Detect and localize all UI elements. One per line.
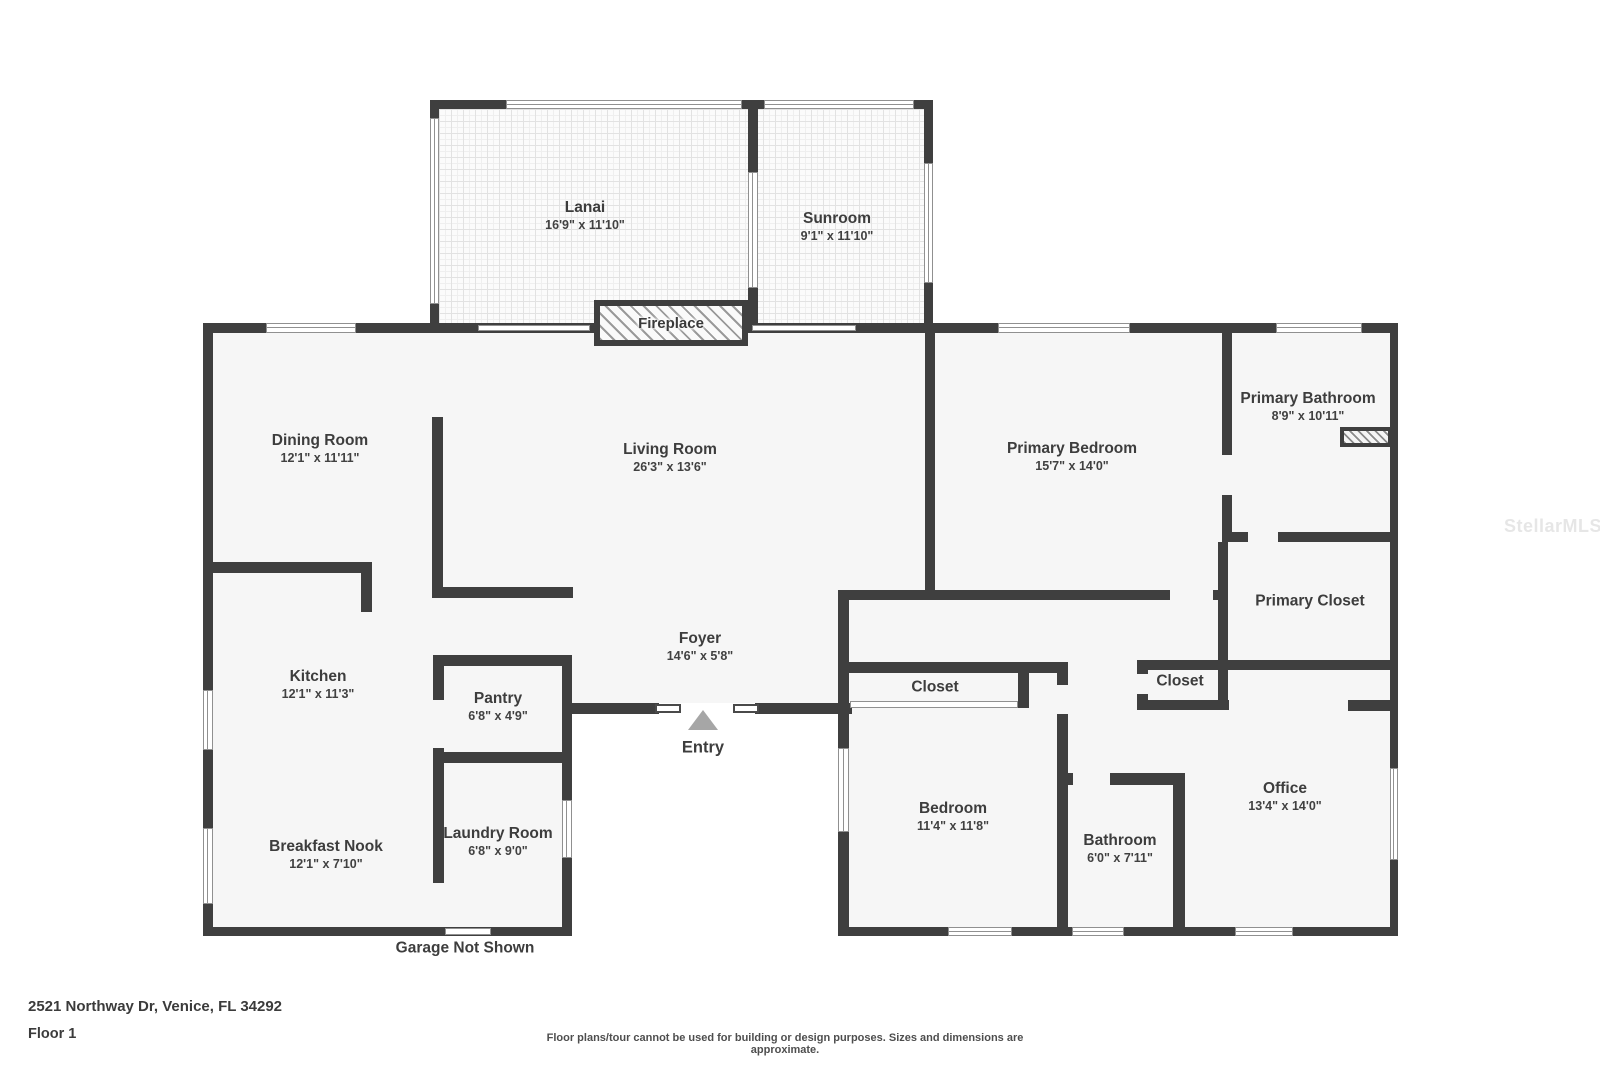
wall: [1018, 662, 1029, 708]
wall: [433, 752, 572, 763]
room-label-living-room: Living Room 26'3" x 13'6": [623, 440, 717, 476]
wall: [432, 587, 573, 598]
address: 2521 Northway Dr, Venice, FL 34292: [28, 998, 282, 1015]
room-name: Primary Bedroom: [1007, 439, 1137, 458]
door-gap: [1248, 532, 1278, 542]
room-label-office-closet: Closet: [1156, 672, 1203, 691]
room-dims: 14'6" x 5'8": [667, 648, 733, 665]
wall: [432, 417, 443, 598]
bathroom-fixture: [1340, 427, 1392, 447]
closet-sliding-door: [850, 701, 1018, 708]
wall: [562, 655, 572, 927]
door-gap: [1222, 455, 1232, 495]
window: [948, 927, 1012, 936]
room-name: Sunroom: [801, 209, 874, 228]
room-name: Laundry Room: [443, 824, 552, 843]
window: [203, 828, 213, 904]
stellar-mls-watermark: StellarMLS: [1504, 516, 1600, 537]
wall: [1173, 773, 1185, 936]
window: [266, 323, 356, 333]
room-dims: 11'4" x 11'8": [917, 818, 989, 835]
room-name: Pantry: [468, 689, 528, 708]
wall: [562, 703, 659, 714]
room-dims: 13'4" x 14'0": [1248, 798, 1321, 815]
room-label-primary-closet: Primary Closet: [1255, 592, 1364, 611]
room-label-breakfast-nook: Breakfast Nook 12'1" x 7'10": [269, 837, 383, 873]
room-dims: 12'1" x 7'10": [269, 856, 383, 873]
wall: [1218, 542, 1228, 670]
room-name: Dining Room: [272, 431, 368, 450]
wall: [433, 655, 572, 666]
window: [748, 172, 758, 288]
entry-door-jamb: [733, 704, 759, 713]
fireplace: Fireplace: [594, 300, 748, 346]
wall: [838, 662, 1068, 673]
door-gap: [433, 883, 444, 927]
room-dims: 26'3" x 13'6": [623, 459, 717, 476]
room-label-lanai: Lanai 16'9" x 11'10": [545, 198, 625, 234]
entry-arrow-icon: [688, 710, 718, 730]
wall: [203, 562, 372, 573]
door-gap: [1170, 590, 1213, 600]
wall: [1222, 333, 1232, 542]
room-label-primary-bedroom: Primary Bedroom 15'7" x 14'0": [1007, 439, 1137, 475]
wall: [1137, 660, 1148, 674]
room-label-kitchen: Kitchen 12'1" x 11'3": [282, 667, 355, 703]
window: [562, 800, 572, 858]
room-label-pantry: Pantry 6'8" x 4'9": [468, 689, 528, 725]
garage-note: Garage Not Shown: [396, 939, 535, 958]
room-name: Living Room: [623, 440, 717, 459]
room-dims: 6'8" x 4'9": [468, 708, 528, 725]
window: [764, 100, 914, 109]
wall: [1057, 662, 1068, 685]
room-name: Kitchen: [282, 667, 355, 686]
room-name: Entry: [682, 739, 724, 758]
fireplace-label: Fireplace: [638, 315, 704, 332]
wall: [1057, 714, 1068, 773]
floor-label: Floor 1: [28, 1026, 76, 1042]
room-name: Bathroom: [1083, 831, 1156, 850]
bedroom-wing-floor: [848, 590, 1390, 927]
room-dims: 6'8" x 9'0": [443, 843, 552, 860]
entry-label: Entry: [682, 739, 724, 758]
room-label-bedroom-closet: Closet: [911, 678, 958, 697]
window: [998, 323, 1130, 333]
wall: [1137, 660, 1398, 670]
wall: [361, 562, 372, 612]
room-label-foyer: Foyer 14'6" x 5'8": [667, 629, 733, 665]
wall: [1057, 773, 1068, 936]
window: [1235, 927, 1293, 936]
room-dims: 15'7" x 14'0": [1007, 458, 1137, 475]
primary-wing-floor: [925, 333, 1390, 598]
wall: [925, 333, 935, 598]
window: [203, 690, 213, 750]
disclaimer: Floor plans/tour cannot be used for buil…: [540, 1032, 1030, 1056]
room-name: Bedroom: [917, 799, 989, 818]
room-dims: 6'0" x 7'11": [1083, 850, 1156, 867]
note-text: Garage Not Shown: [396, 939, 535, 958]
garage-door-opening: [445, 928, 491, 935]
floor-plan-page: Fireplace Lanai 16'9" x 11'10" Sunroom 9…: [0, 0, 1600, 1066]
wall: [1137, 700, 1229, 710]
room-name: Primary Bathroom: [1240, 389, 1375, 408]
room-name: Office: [1248, 779, 1321, 798]
room-dims: 12'1" x 11'11": [272, 450, 368, 467]
wall: [203, 927, 572, 936]
room-name: Closet: [911, 678, 958, 697]
room-label-sunroom: Sunroom 9'1" x 11'10": [801, 209, 874, 245]
window: [1276, 323, 1362, 333]
room-label-laundry-room: Laundry Room 6'8" x 9'0": [443, 824, 552, 860]
door-gap: [433, 700, 444, 748]
window: [1390, 768, 1398, 860]
room-name: Breakfast Nook: [269, 837, 383, 856]
window: [1072, 927, 1124, 936]
room-name: Primary Closet: [1255, 592, 1364, 611]
room-label-dining-room: Dining Room 12'1" x 11'11": [272, 431, 368, 467]
room-name: Lanai: [545, 198, 625, 217]
room-label-bathroom: Bathroom 6'0" x 7'11": [1083, 831, 1156, 867]
room-dims: 8'9" x 10'11": [1240, 408, 1375, 425]
room-dims: 16'9" x 11'10": [545, 217, 625, 234]
sliding-door: [752, 325, 856, 331]
room-name: Foyer: [667, 629, 733, 648]
door-gap: [1073, 773, 1110, 785]
room-dims: 12'1" x 11'3": [282, 686, 355, 703]
sliding-door: [478, 325, 590, 331]
wall: [1348, 700, 1390, 711]
room-name: Closet: [1156, 672, 1203, 691]
window: [430, 118, 439, 304]
window: [506, 100, 742, 109]
room-label-bedroom: Bedroom 11'4" x 11'8": [917, 799, 989, 835]
entry-door-jamb: [655, 704, 681, 713]
window: [924, 163, 933, 283]
window: [838, 748, 849, 832]
room-label-primary-bathroom: Primary Bathroom 8'9" x 10'11": [1240, 389, 1375, 425]
room-label-office: Office 13'4" x 14'0": [1248, 779, 1321, 815]
room-dims: 9'1" x 11'10": [801, 228, 874, 245]
